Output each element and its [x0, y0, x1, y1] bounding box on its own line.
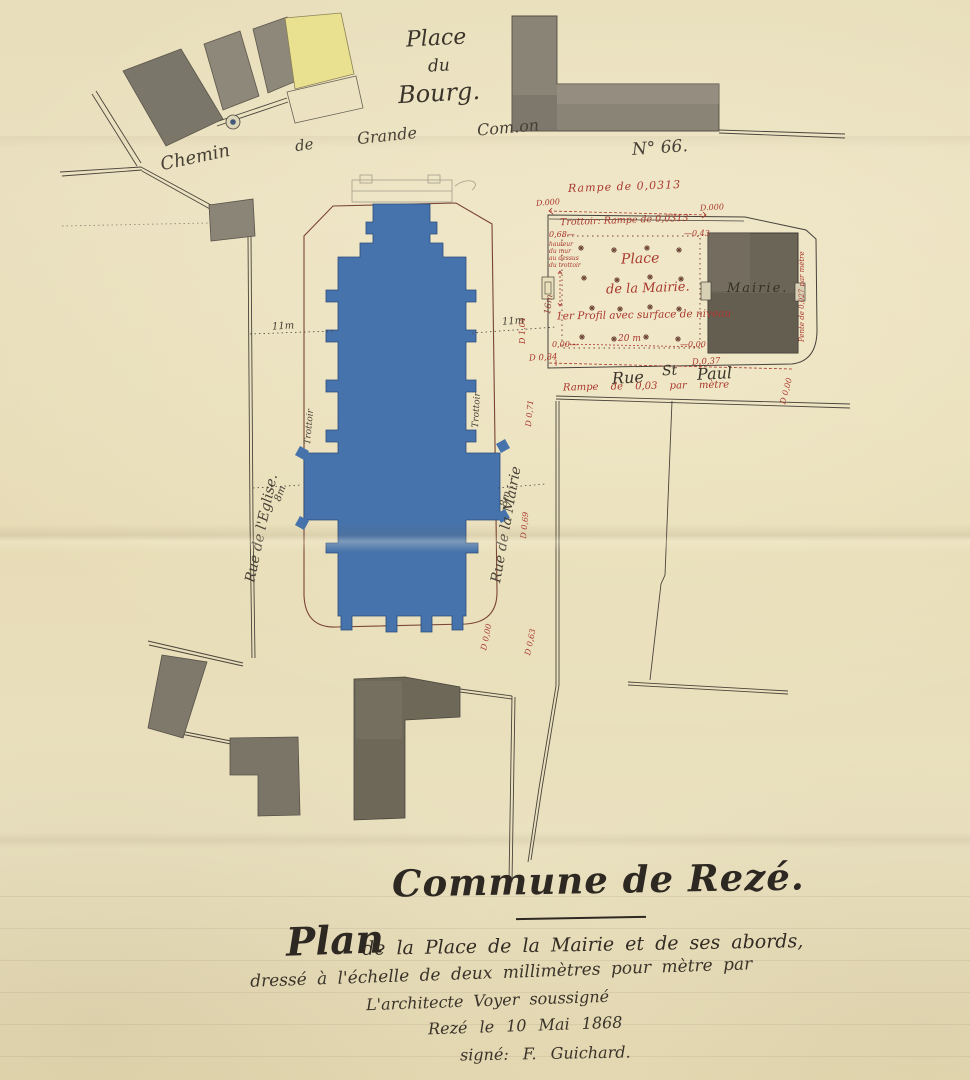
square-gate [542, 277, 554, 299]
map-canvas [0, 0, 970, 1080]
church-building [295, 204, 510, 632]
mairie-building [701, 233, 805, 353]
tree-symbols [578, 245, 684, 342]
mairie-door-left [701, 282, 711, 300]
place-de-la-mairie [542, 215, 817, 368]
building-top-right [512, 16, 719, 131]
yellow-building [285, 13, 354, 89]
buildings-bottom [148, 655, 460, 820]
pencil-sketch [352, 175, 475, 202]
mairie-door-right [795, 283, 805, 301]
corner-building [209, 199, 255, 241]
plan-sheet: Place du Bourg. Chemin de Grande Com.on … [0, 0, 970, 1080]
buildings-top-left [123, 13, 363, 146]
